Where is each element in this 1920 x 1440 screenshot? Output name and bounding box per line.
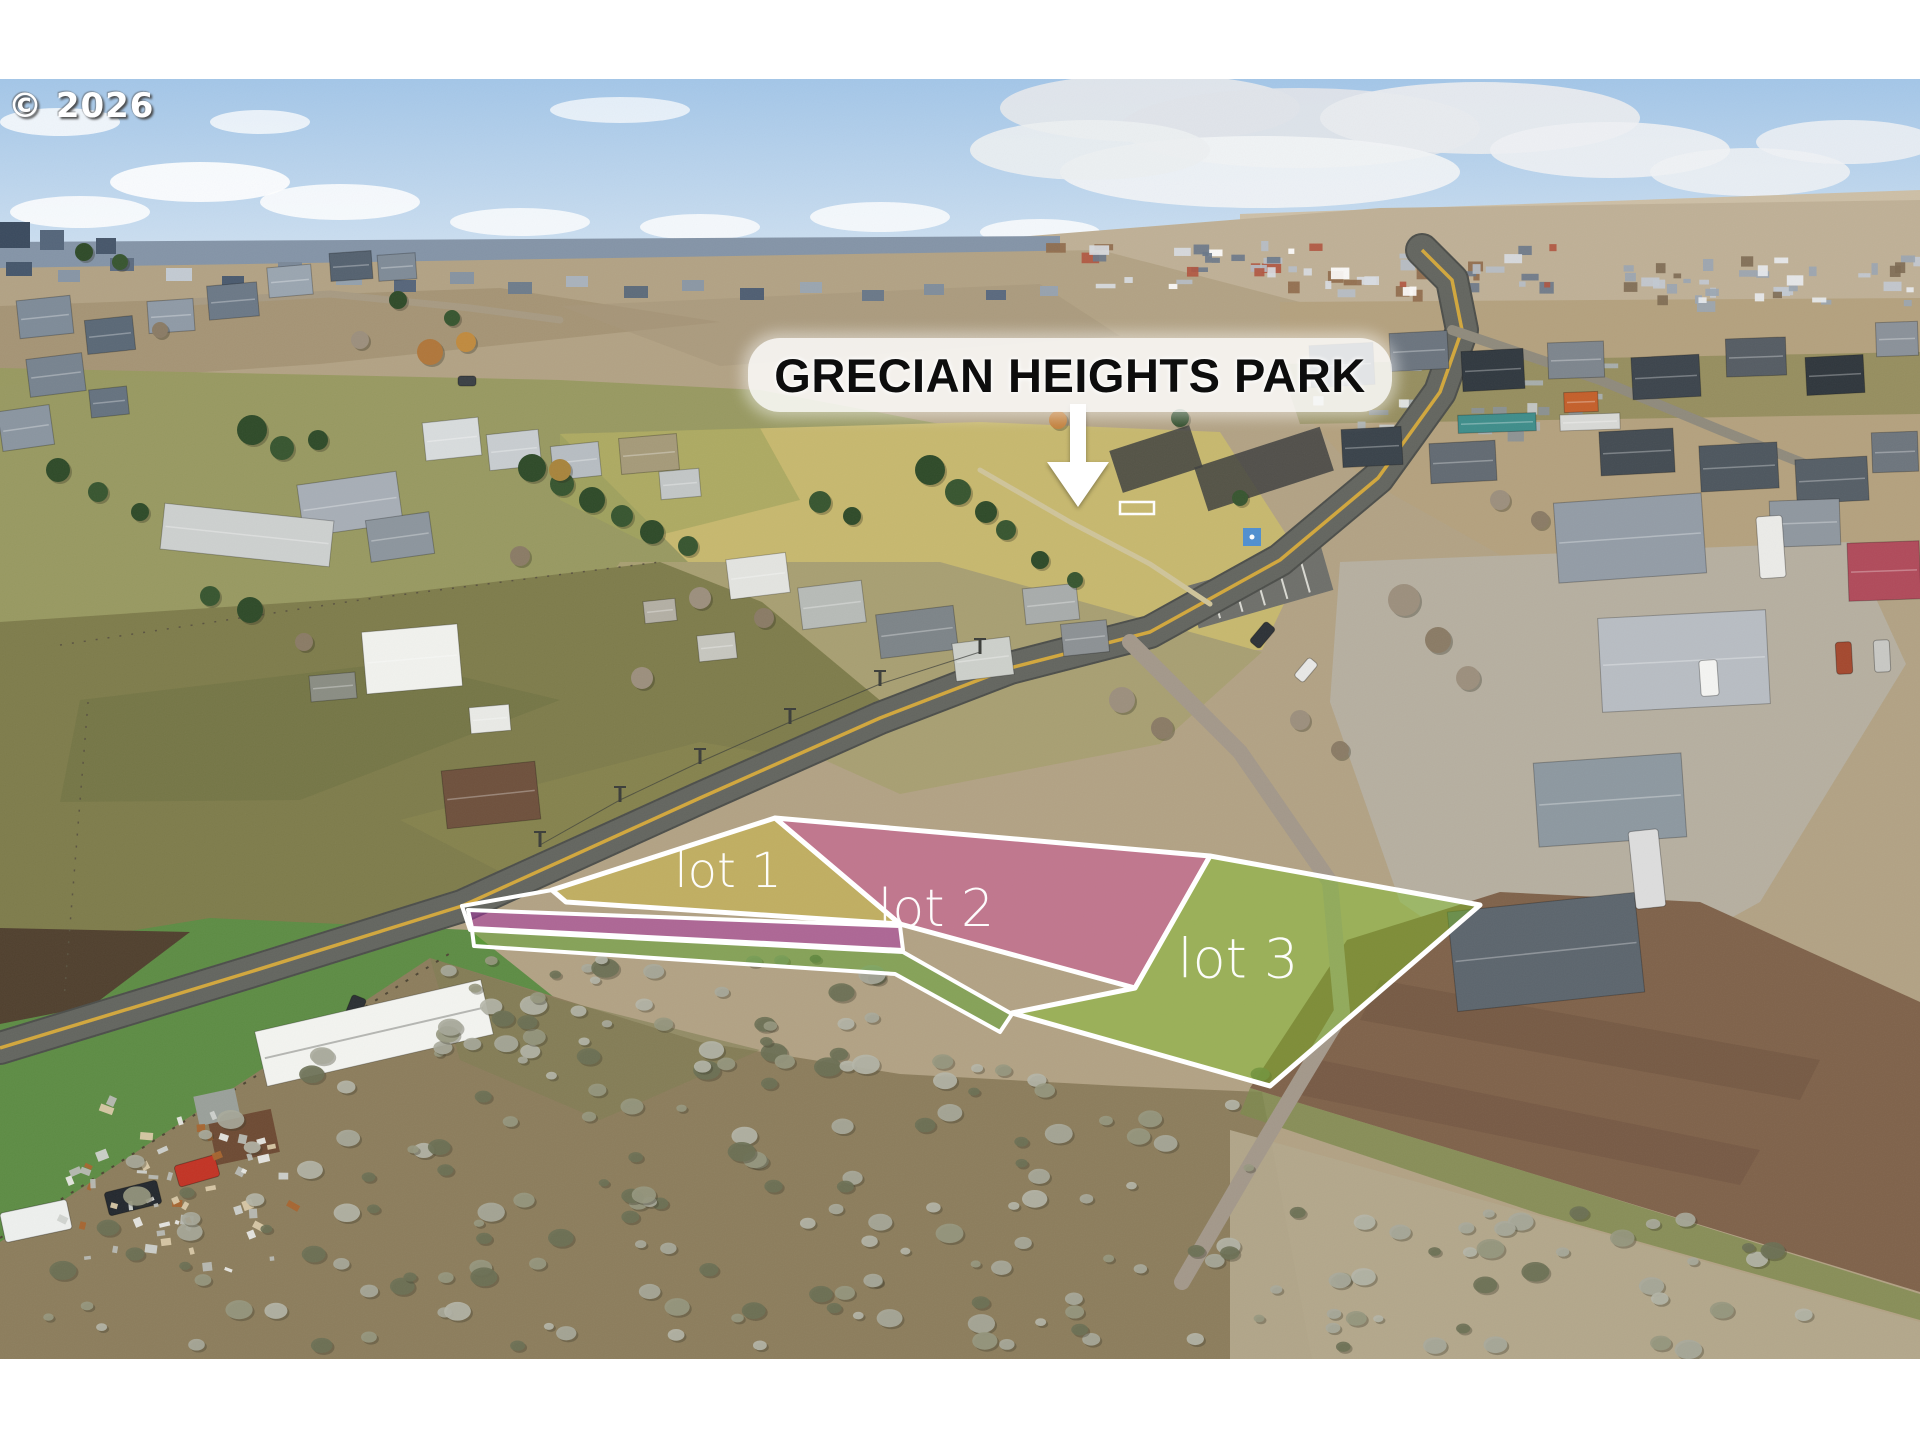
photo-scene: [0, 0, 1920, 1440]
aerial-listing-photo: © 2026 GRECIAN HEIGHTS PARK lot 1 lot 2 …: [0, 0, 1920, 1440]
photo-grain: [0, 79, 1920, 1359]
